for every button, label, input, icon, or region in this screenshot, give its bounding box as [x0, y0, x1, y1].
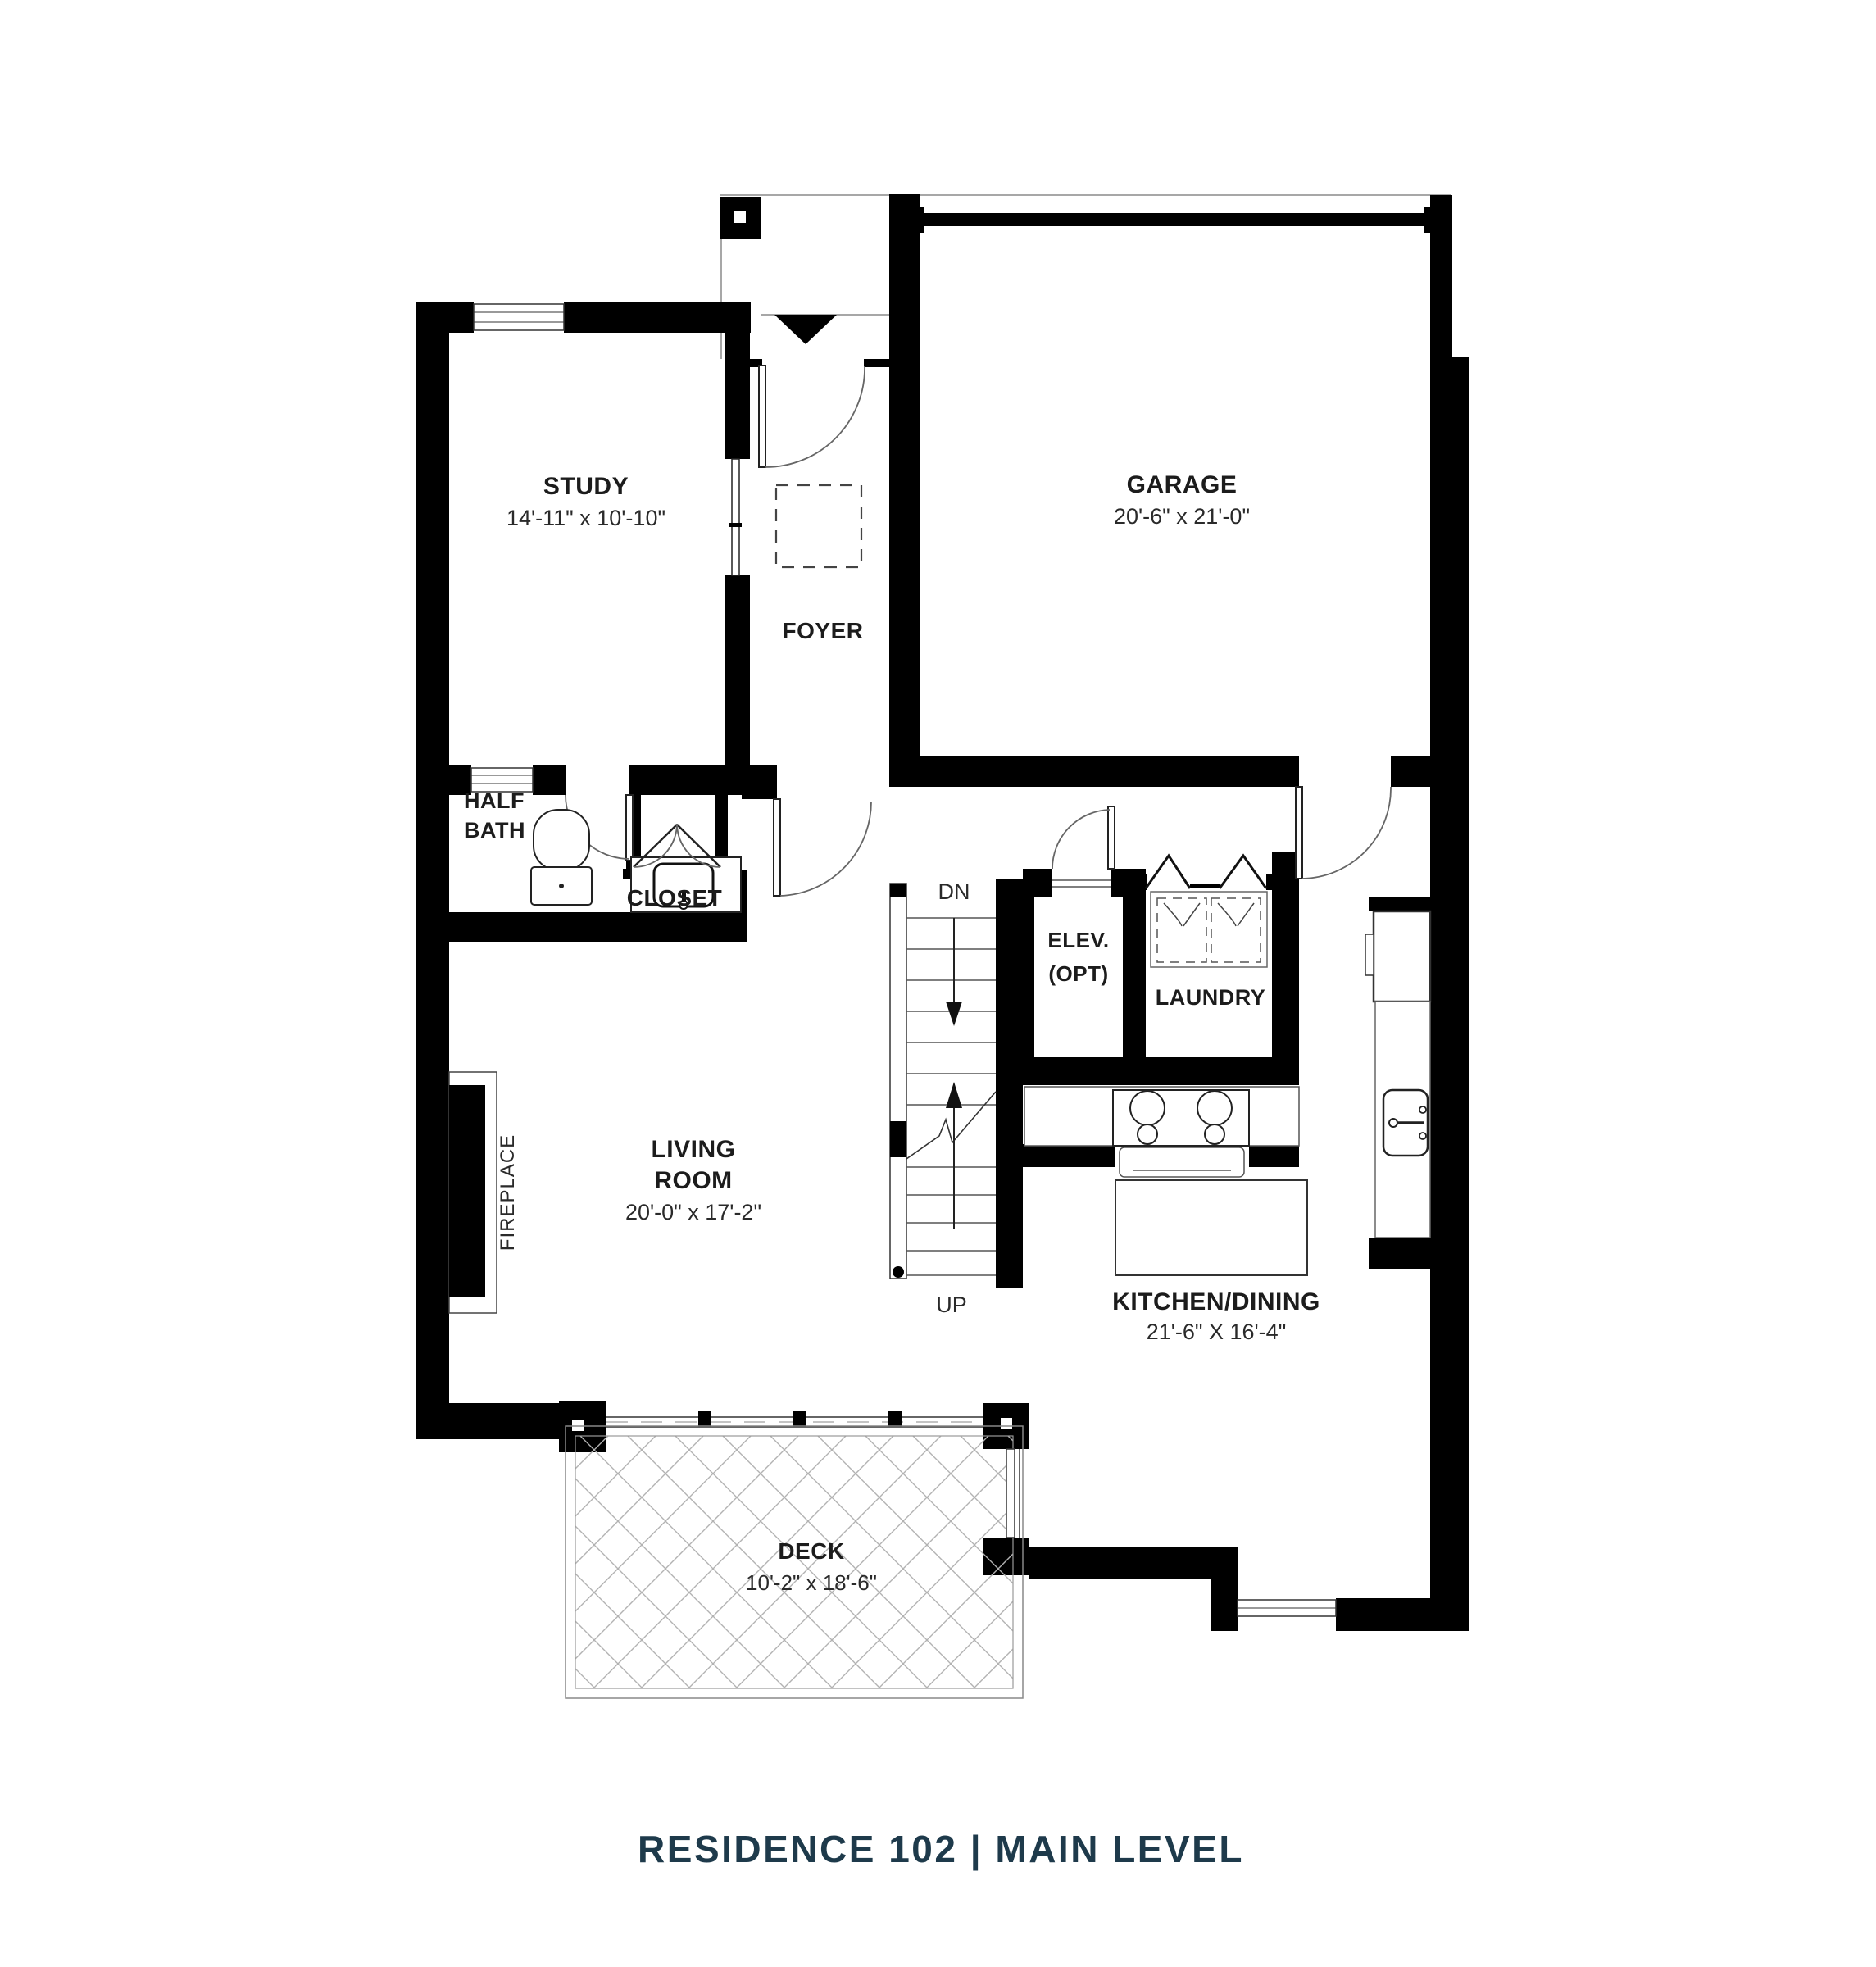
floor-plan-drawing: STUDY 14'-11" x 10'-10" GARAGE 20'-6" x … — [0, 0, 1876, 1967]
page-title: RESIDENCE 102 | MAIN LEVEL — [638, 1828, 1244, 1870]
stairs-down-label: DN — [938, 879, 970, 904]
dining-window — [1238, 1600, 1336, 1616]
elevator-label-line2: (OPT) — [1048, 961, 1108, 986]
wall-segment — [1211, 1547, 1238, 1631]
wall-segment — [725, 575, 750, 769]
stairs-up-label: UP — [936, 1292, 967, 1317]
wall-segment — [564, 302, 751, 333]
wall-segment — [996, 1082, 1023, 1288]
half-bath-label-line1: HALF — [464, 788, 525, 813]
down-arrow-icon — [946, 1002, 962, 1026]
garage-door — [908, 207, 1440, 233]
deck-sliding-door — [1006, 1449, 1020, 1538]
wall-segment — [1023, 1144, 1115, 1167]
wall-segment — [742, 765, 777, 799]
refrigerator — [1365, 911, 1430, 1002]
closet-label: CLOSET — [627, 885, 723, 911]
wall-segment — [1190, 884, 1220, 888]
deck-label: DECK — [778, 1538, 844, 1564]
wall-segment — [889, 194, 920, 756]
oven-front — [1120, 1147, 1244, 1177]
washer-dryer — [1151, 892, 1267, 967]
study-window — [474, 304, 564, 330]
study-label: STUDY — [543, 473, 629, 500]
walls — [416, 194, 1469, 1631]
elevator-label-line1: ELEV. — [1047, 928, 1109, 952]
deck-railing — [606, 1411, 983, 1427]
wall-segment — [1249, 1144, 1299, 1167]
wall-segment — [1369, 1238, 1430, 1269]
wall-segment — [725, 302, 750, 459]
wall-segment — [1336, 1598, 1469, 1631]
front-door — [747, 359, 889, 467]
wall-segment — [996, 879, 1034, 1082]
wall-segment — [416, 765, 471, 795]
living-room-label-line2: ROOM — [654, 1167, 732, 1194]
wall-segment — [416, 1403, 564, 1439]
wall-segment — [889, 756, 1299, 787]
kitchen-dining-dims: 21'-6" X 16'-4" — [1147, 1320, 1287, 1344]
wall-segment — [629, 765, 751, 795]
fireplace-label: FIREPLACE — [497, 1134, 519, 1251]
wall-segment — [416, 302, 449, 1439]
wall-segment — [1430, 357, 1469, 1631]
laundry-label: LAUNDRY — [1156, 985, 1266, 1010]
foyer-label: FOYER — [783, 618, 864, 643]
hall-door — [774, 799, 871, 896]
floor-plan-page: STUDY 14'-11" x 10'-10" GARAGE 20'-6" x … — [0, 0, 1876, 1967]
wall-segment — [533, 765, 566, 795]
wall-segment — [1146, 1057, 1299, 1085]
garage-label: GARAGE — [1127, 471, 1238, 498]
living-room-label-line1: LIVING — [651, 1136, 735, 1163]
living-room-dims: 20'-0" x 17'-2" — [625, 1200, 761, 1224]
entry-column-core — [734, 211, 746, 223]
range — [1113, 1090, 1249, 1146]
wall-segment — [416, 912, 747, 942]
wall-segment — [1266, 874, 1276, 890]
kitchen-sink — [1383, 1090, 1428, 1156]
foyer-dashed-area — [776, 485, 861, 567]
wall-segment — [1111, 869, 1123, 897]
kitchen-dining-label: KITCHEN/DINING — [1112, 1288, 1320, 1315]
wall-segment — [1369, 897, 1430, 911]
half-bath-label-line2: BATH — [464, 818, 525, 843]
wall-segment — [1029, 1547, 1211, 1579]
deck-dims: 10'-2" x 18'-6" — [746, 1570, 877, 1595]
post-core — [1001, 1418, 1012, 1429]
up-arrow-icon — [946, 1082, 962, 1108]
wall-segment — [1023, 869, 1052, 897]
entry-direction-marker — [774, 315, 837, 344]
garage-entry-door — [1296, 787, 1391, 879]
garage-dims: 20'-6" x 21'-0" — [1114, 504, 1250, 529]
toilet — [531, 810, 592, 905]
elevator-door — [1052, 806, 1115, 887]
study-pocket-door — [729, 459, 742, 575]
wall-segment — [1123, 869, 1146, 1085]
study-dims: 14'-11" x 10'-10" — [506, 506, 665, 530]
stairs — [890, 884, 996, 1279]
wall-segment — [416, 302, 474, 333]
fireplace — [449, 1072, 497, 1313]
kitchen-island — [1115, 1180, 1307, 1275]
wall-segment — [996, 1057, 1146, 1085]
post-core — [572, 1420, 584, 1431]
